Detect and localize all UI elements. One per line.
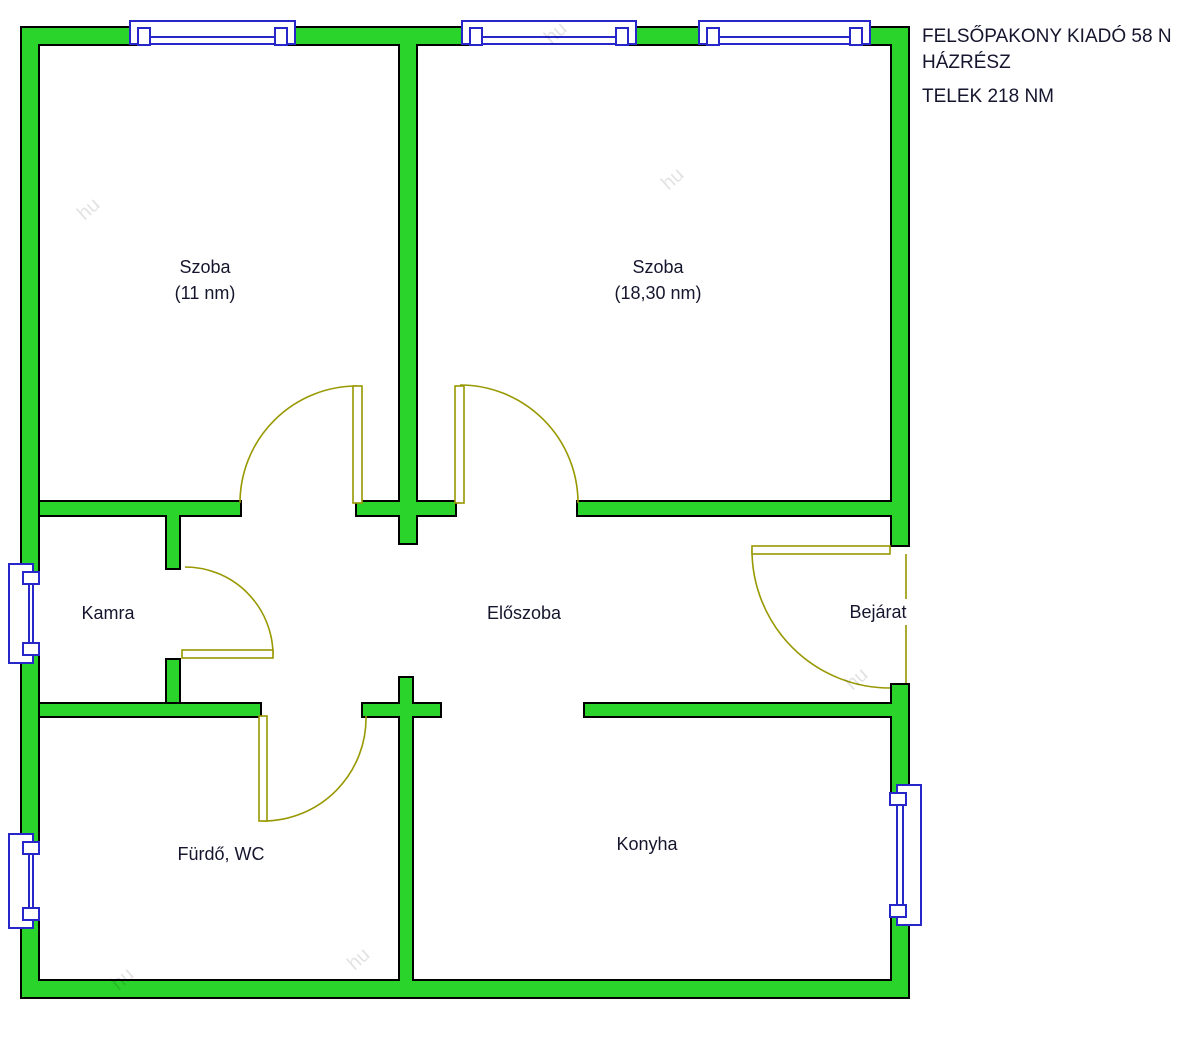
window-jamb — [890, 905, 906, 917]
window-jamb — [23, 908, 39, 920]
wall-segment — [22, 655, 38, 842]
room-name: Fürdő, WC — [177, 841, 264, 867]
wall-segment — [22, 28, 38, 572]
wall-segment — [167, 660, 179, 702]
wall-segment — [22, 981, 908, 997]
floorplan-drawing — [0, 0, 1200, 1042]
wall-segment — [400, 678, 412, 981]
door-szoba-left — [240, 386, 362, 503]
door-swing-arc — [185, 567, 273, 655]
window-right-konyha — [890, 785, 921, 925]
door-swing-arc — [460, 385, 578, 503]
walls — [22, 28, 908, 997]
window-jamb — [275, 28, 287, 45]
listing-header: FELSŐPAKONY KIADÓ 58 N HÁZRÉSZ TELEK 218… — [922, 24, 1200, 110]
window-jamb — [890, 793, 906, 805]
wall-segment — [22, 28, 138, 44]
wall-segment — [892, 685, 908, 793]
door-leaf — [353, 386, 362, 503]
room-label-eloszoba: Előszoba — [484, 600, 564, 626]
room-name: Szoba — [614, 254, 701, 280]
listing-title-line2: HÁZRÉSZ — [922, 50, 1200, 76]
door-kamra — [182, 567, 273, 658]
room-name: Bejárat — [849, 599, 906, 625]
room-label-kamra: Kamra — [78, 600, 137, 626]
room-label-szoba-2: Szoba (18,30 nm) — [611, 254, 704, 306]
wall-segment — [628, 28, 707, 44]
listing-plot-size: TELEK 218 NM — [922, 84, 1200, 110]
window-jamb — [23, 643, 39, 655]
door-leaf — [752, 546, 890, 554]
door-furdo — [259, 716, 366, 821]
window-jamb — [850, 28, 862, 45]
wall-segment — [287, 28, 470, 44]
wall-segment — [892, 28, 908, 545]
room-label-furdo-wc: Fürdő, WC — [174, 841, 267, 867]
door-szoba-right — [455, 385, 578, 503]
wall-segment — [167, 515, 179, 568]
room-label-szoba-1: Szoba (11 nm) — [172, 254, 239, 306]
window-top-left — [130, 21, 295, 45]
door-leaf — [455, 386, 464, 503]
window-jamb — [23, 842, 39, 854]
door-swing-arc — [263, 716, 366, 821]
wall-segment — [578, 502, 892, 515]
window-jamb — [138, 28, 150, 45]
window-jamb — [616, 28, 628, 45]
window-jamb — [23, 572, 39, 584]
room-area: (11 nm) — [175, 280, 236, 306]
room-area: (18,30 nm) — [614, 280, 701, 306]
wall-segment — [585, 704, 892, 716]
room-label-bejarat: Bejárat — [846, 599, 909, 625]
wall-segment — [40, 502, 240, 515]
window-frame — [130, 21, 295, 44]
window-left-kamra — [9, 564, 39, 663]
window-top-right — [699, 21, 870, 45]
door-leaf — [259, 716, 267, 821]
room-name: Szoba — [175, 254, 236, 280]
wall-segment — [357, 502, 455, 515]
window-jamb — [707, 28, 719, 45]
listing-title-line1: FELSŐPAKONY KIADÓ 58 N — [922, 24, 1200, 50]
room-name: Kamra — [81, 600, 134, 626]
room-name: Konyha — [616, 831, 677, 857]
window-frame — [699, 21, 870, 44]
window-jamb — [470, 28, 482, 45]
floorplan-page: { "header": { "line1": "FELSŐPAKONY KIAD… — [0, 0, 1200, 1042]
wall-segment — [40, 704, 260, 716]
room-label-konyha: Konyha — [613, 831, 680, 857]
door-leaf — [182, 650, 273, 658]
window-left-furdo — [9, 834, 39, 928]
window-frame — [462, 21, 636, 44]
room-name: Előszoba — [487, 600, 561, 626]
door-swing-arc — [240, 386, 357, 503]
window-top-middle — [462, 21, 636, 45]
wall-segment — [400, 28, 416, 543]
